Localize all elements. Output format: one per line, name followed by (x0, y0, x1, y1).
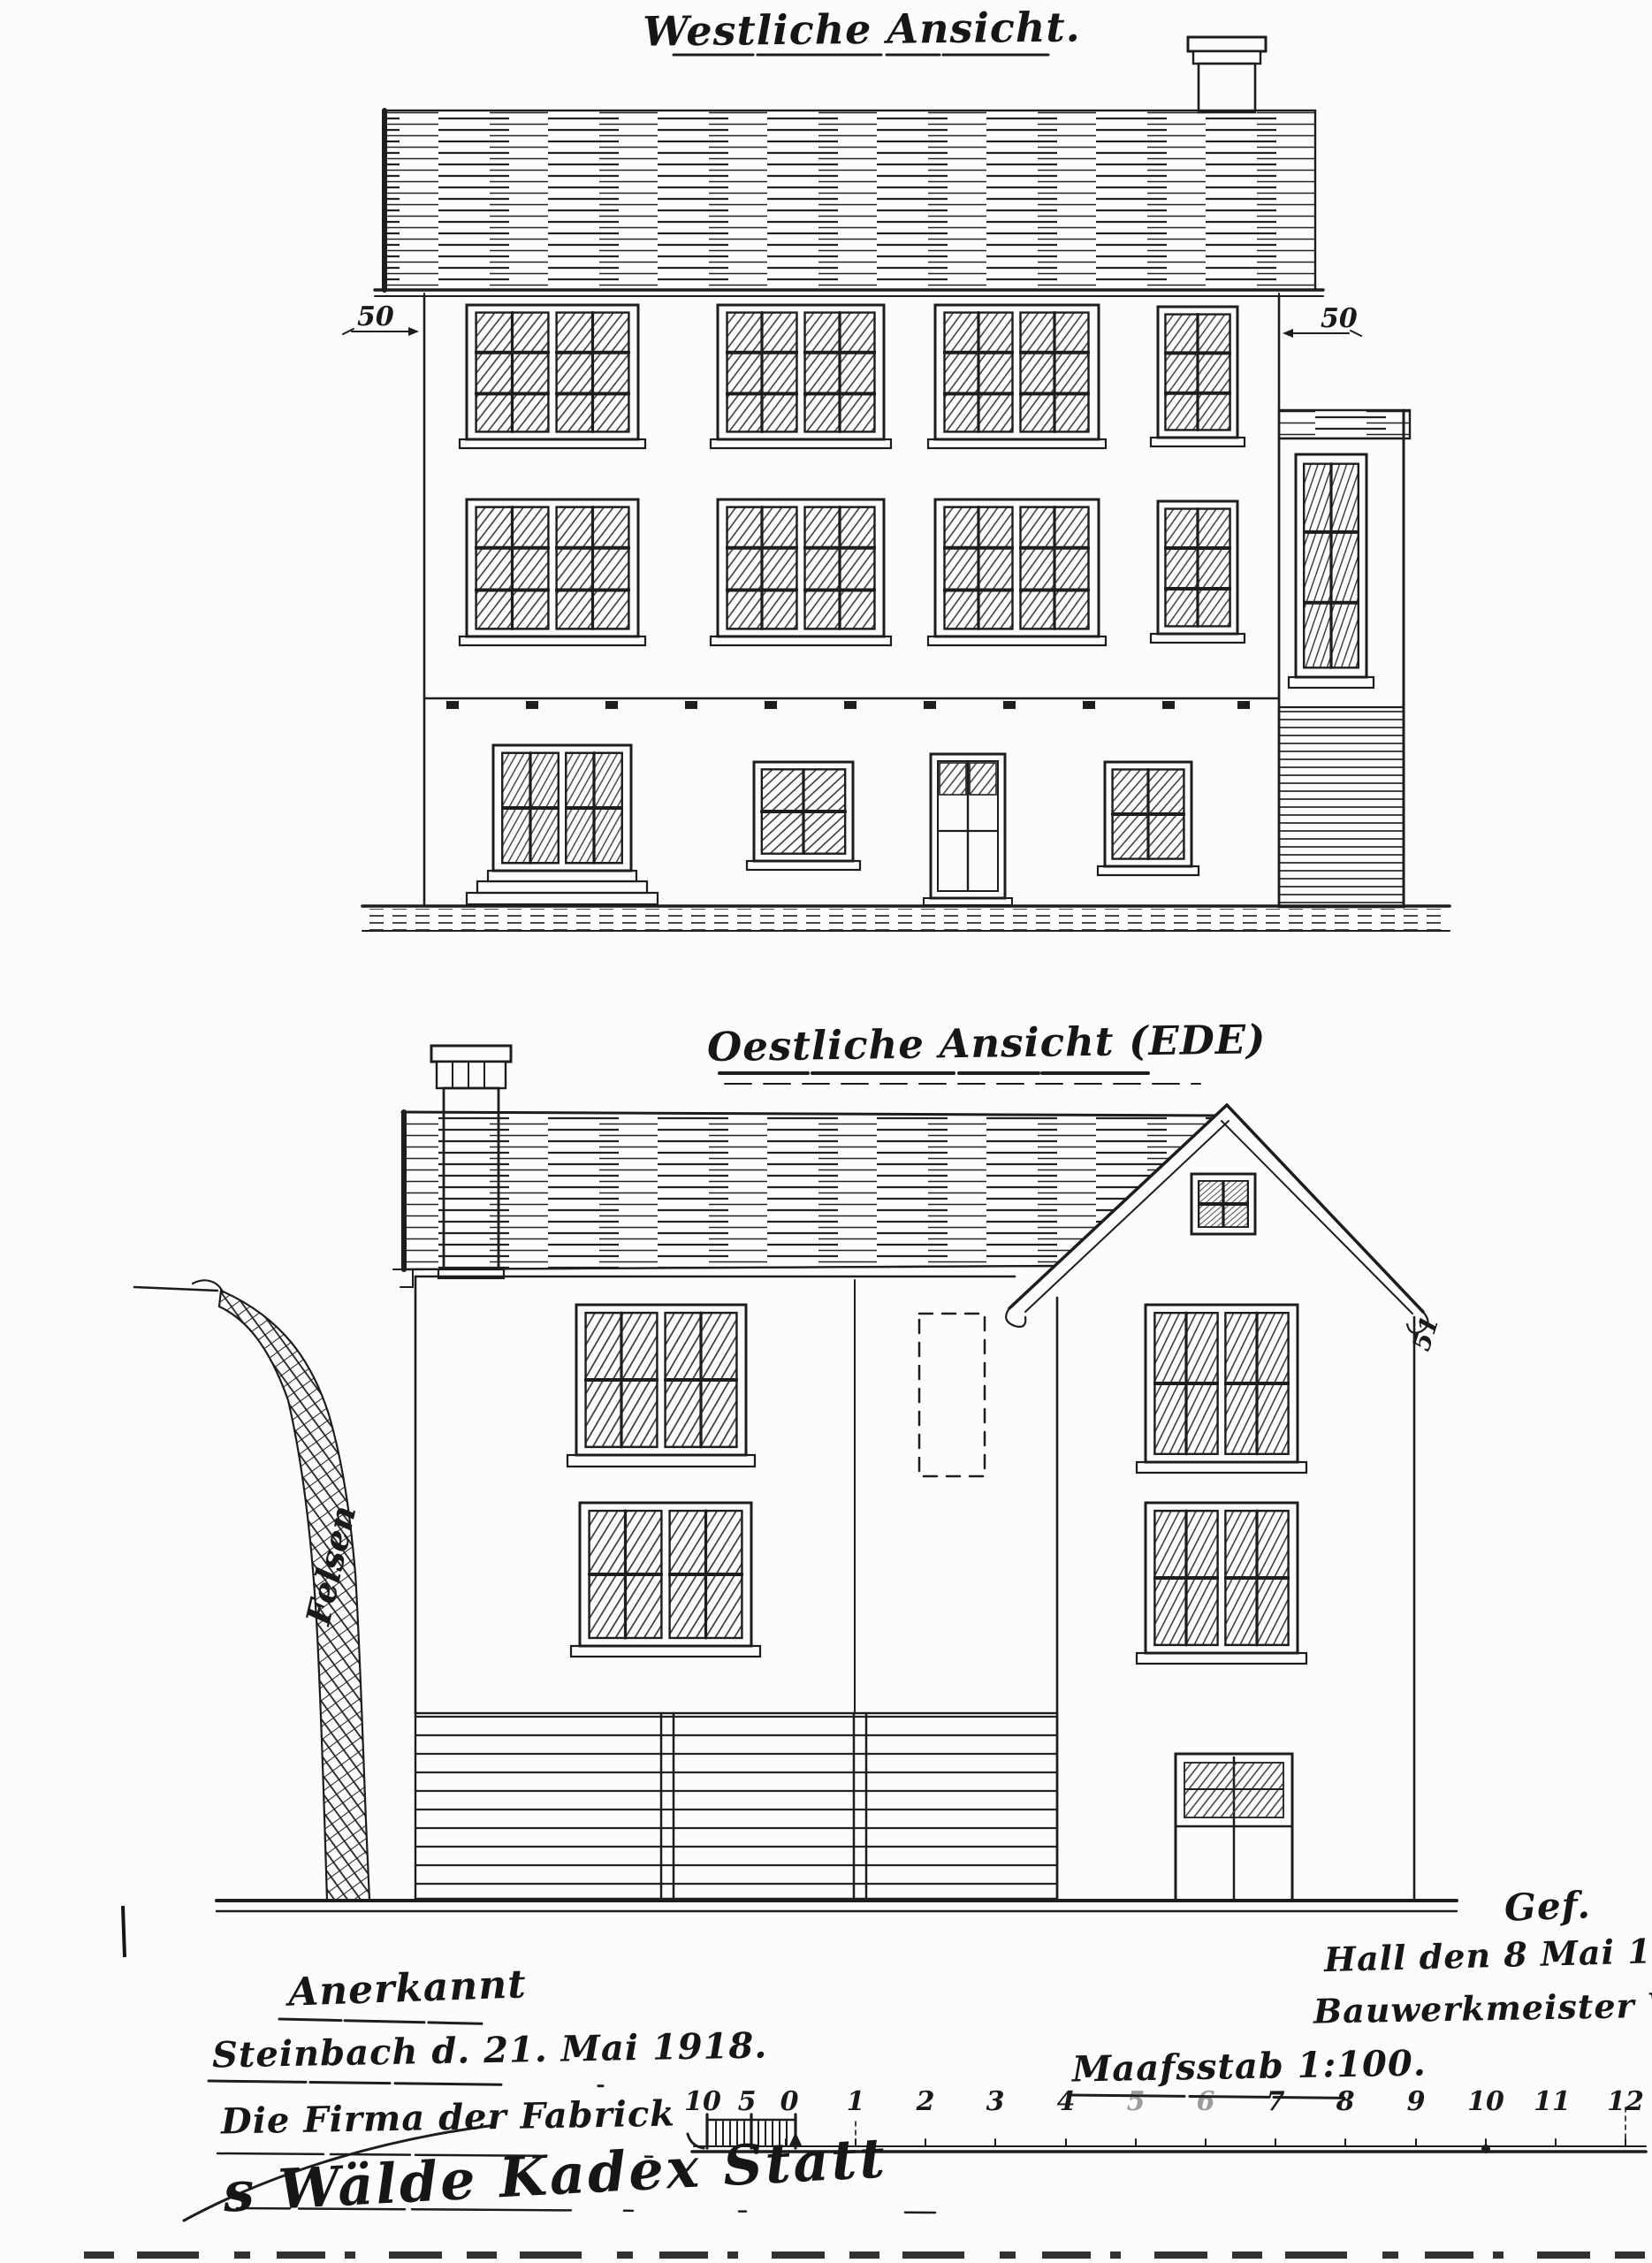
east-windows (567, 1305, 1306, 1664)
scale-tick-label: 7 (1267, 2086, 1285, 2117)
west-ground-line (362, 906, 1450, 931)
west-elevation-drawing: 50 50 (343, 37, 1450, 931)
west-dim-left-label: 50 (357, 301, 394, 332)
east-ground-line (217, 1901, 1457, 1911)
author-gef-line: Gef. (1504, 1883, 1591, 1929)
blueprint-page: 50 50 Felsen (0, 0, 1652, 2263)
west-entrance-door (924, 754, 1012, 905)
scale-tick-label: 8 (1336, 2086, 1355, 2117)
scale-tick-label: 6 (1197, 2086, 1215, 2117)
scale-tick-label: 1 (847, 2086, 865, 2117)
scale-tick-label: 10 (684, 2086, 721, 2117)
approval-firm-line: Die Firma der Fabrick (221, 2093, 676, 2143)
scale-tick-label: 0 (780, 2086, 799, 2117)
scale-tick-label: 12 (1607, 2086, 1644, 2117)
west-ground-floor (467, 745, 1199, 905)
east-elevation-drawing: Felsen (134, 1046, 1457, 1911)
scale-tick-label: 4 (1057, 2086, 1076, 2117)
west-chimney (1188, 37, 1266, 112)
author-name-line: Bauwerkmeister Weiler. (1313, 1983, 1652, 2031)
scale-tick-label: 11 (1534, 2086, 1571, 2117)
west-windows-row1 (460, 305, 1245, 448)
scale-unit-ticks (786, 2139, 1625, 2146)
dashed-opening (919, 1314, 985, 1476)
scale-label: Maafsstab 1:100. (1072, 2043, 1427, 2091)
east-elevation-title: Oestliche Ansicht (EDE) (707, 1017, 1221, 1071)
east-plank-base (415, 1713, 1057, 1899)
west-roof (375, 110, 1323, 296)
scale-tick-label: 2 (917, 2086, 935, 2117)
west-cornice (424, 698, 1279, 709)
east-basement-door (1176, 1754, 1292, 1901)
east-dim-right-label: 51 (1406, 1313, 1444, 1354)
west-elevation-title: Westliche Ansicht. (641, 3, 1084, 55)
scale-tick-label: 5 (738, 2086, 757, 2117)
scale-tick-label: 5 (1127, 2086, 1146, 2117)
west-windows-row2 (460, 499, 1245, 645)
elevation-line-art: 50 50 Felsen (0, 0, 1652, 2263)
scale-tick-label: 3 (986, 2086, 1005, 2117)
west-dim-right-label: 50 (1321, 303, 1358, 334)
scale-tick-label: 9 (1407, 2086, 1426, 2117)
west-annex (1279, 410, 1410, 907)
scale-tick-label: 10 (1467, 2086, 1504, 2117)
approval-heading: Anerkannt (287, 1962, 527, 2015)
rock-face: Felsen (134, 1280, 369, 1901)
